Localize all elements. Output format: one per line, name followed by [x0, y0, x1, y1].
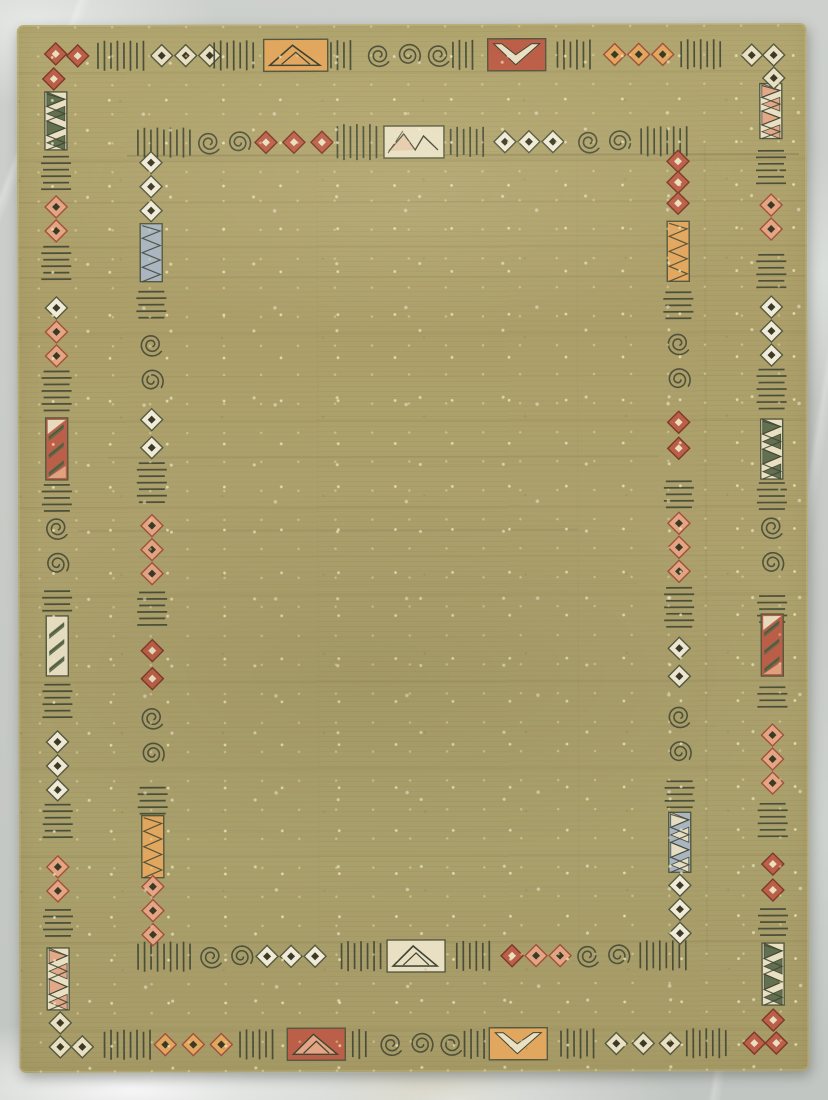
scene — [0, 0, 828, 1100]
rug-motif-layer — [17, 23, 810, 1073]
area-rug — [17, 23, 810, 1073]
